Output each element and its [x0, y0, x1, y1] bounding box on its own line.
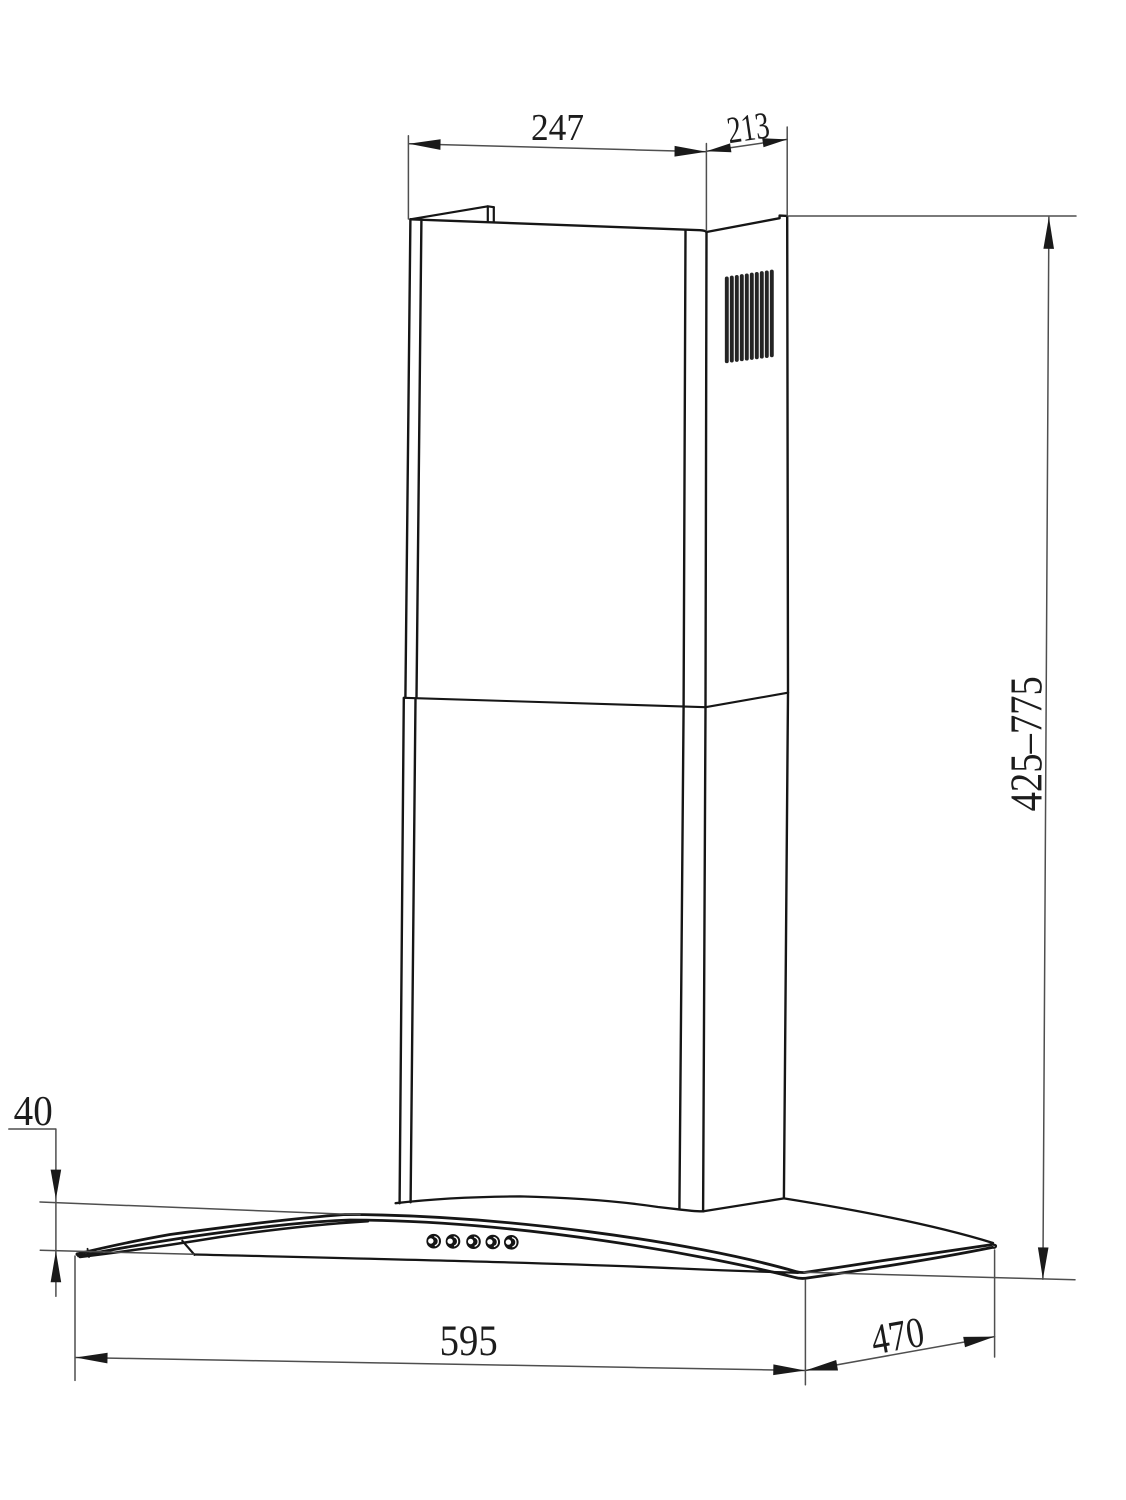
svg-text:213: 213 — [724, 104, 772, 152]
svg-text:470: 470 — [867, 1308, 927, 1365]
svg-text:595: 595 — [440, 1317, 498, 1364]
svg-text:40: 40 — [14, 1088, 53, 1135]
svg-text:247: 247 — [531, 106, 584, 148]
svg-text:425–775: 425–775 — [1001, 676, 1052, 811]
